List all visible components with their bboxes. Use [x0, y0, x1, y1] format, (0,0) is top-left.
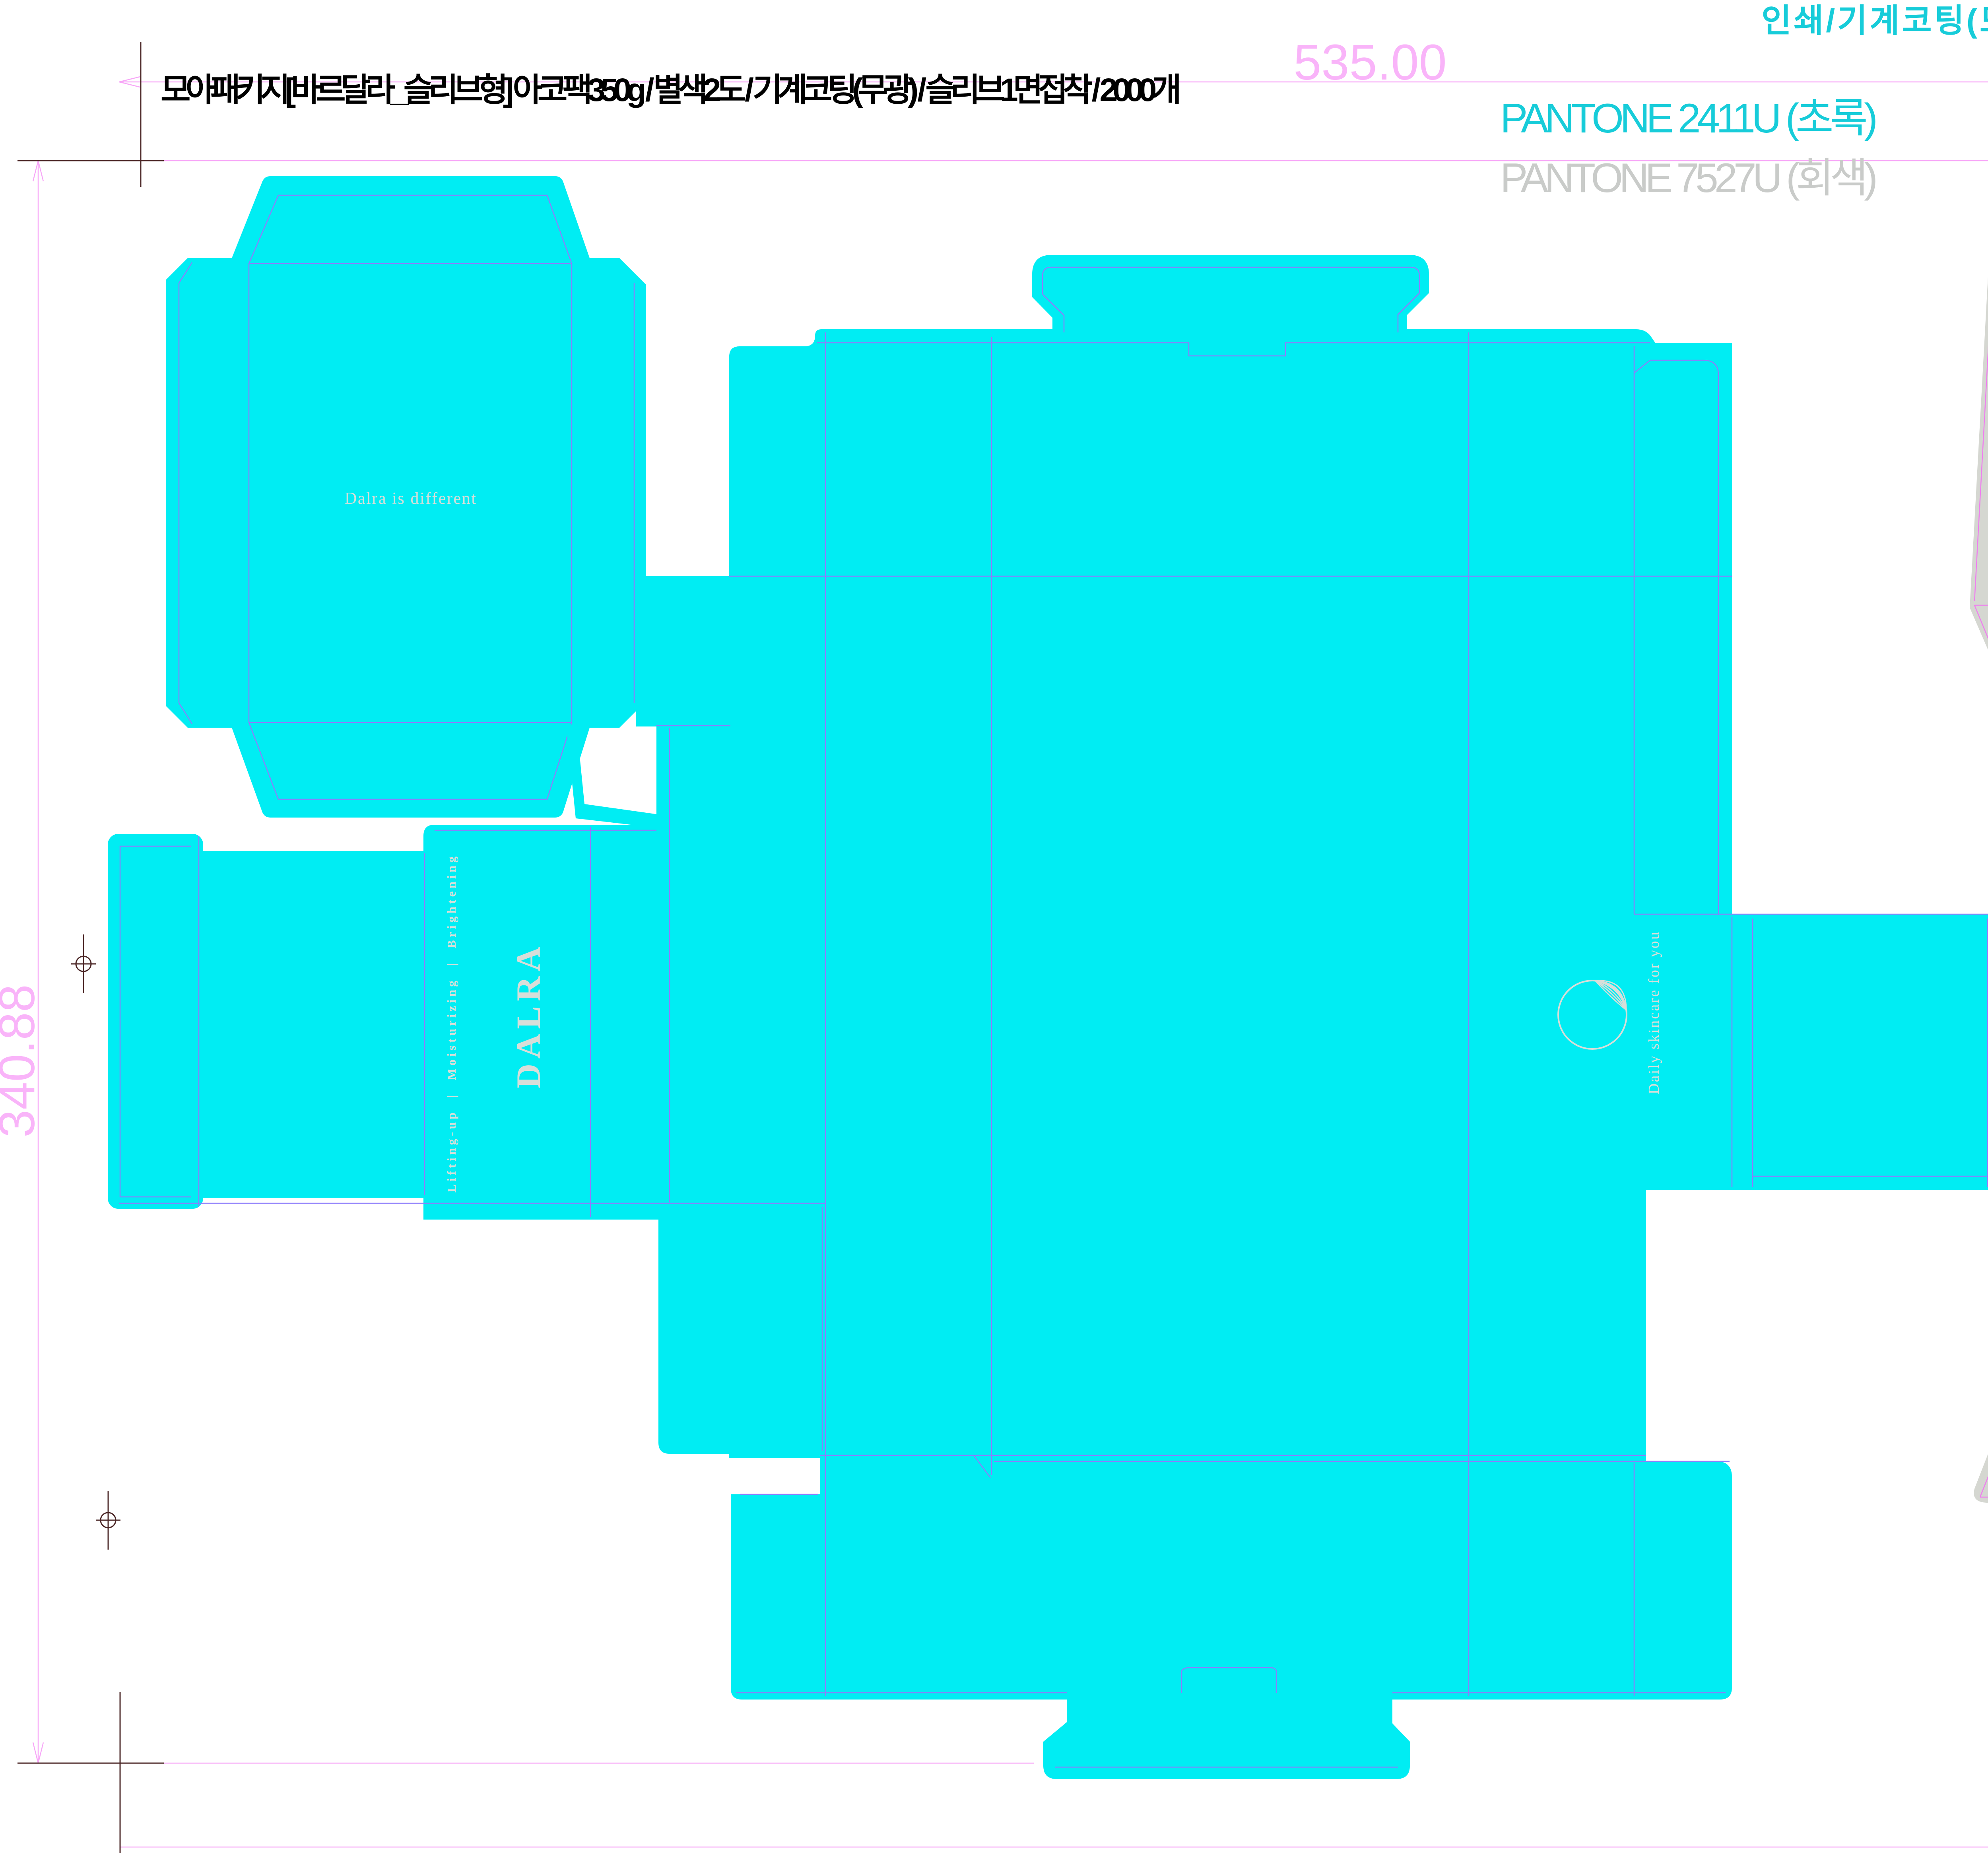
svg-text:Dalra is different: Dalra is different — [345, 489, 476, 508]
svg-text:PANTONE 2411U (초록): PANTONE 2411U (초록) — [1500, 95, 1878, 142]
svg-text:535.00: 535.00 — [1293, 34, 1446, 90]
svg-text:Daily skincare for you: Daily skincare for you — [1646, 932, 1662, 1094]
svg-text:340.88: 340.88 — [0, 984, 45, 1137]
svg-text:DALRA: DALRA — [509, 942, 547, 1088]
svg-text:인쇄/기계코팅(모아프린팅)->톰슨(모아지기)->접착(골: 인쇄/기계코팅(모아프린팅)->톰슨(모아지기)->접착(골드) — [1761, 3, 1988, 39]
svg-text:Lifting-up | Moisturizing |: Lifting-up | Moisturizing | Brightening — [445, 857, 458, 1193]
svg-text:모아패키지[바르달라_슬리브형] 아코팩350g / 별색2: 모아패키지[바르달라_슬리브형] 아코팩350g / 별색2도 / 기계코팅(무… — [161, 72, 1182, 108]
svg-text:PANTONE 7527U (회색): PANTONE 7527U (회색) — [1500, 155, 1878, 201]
